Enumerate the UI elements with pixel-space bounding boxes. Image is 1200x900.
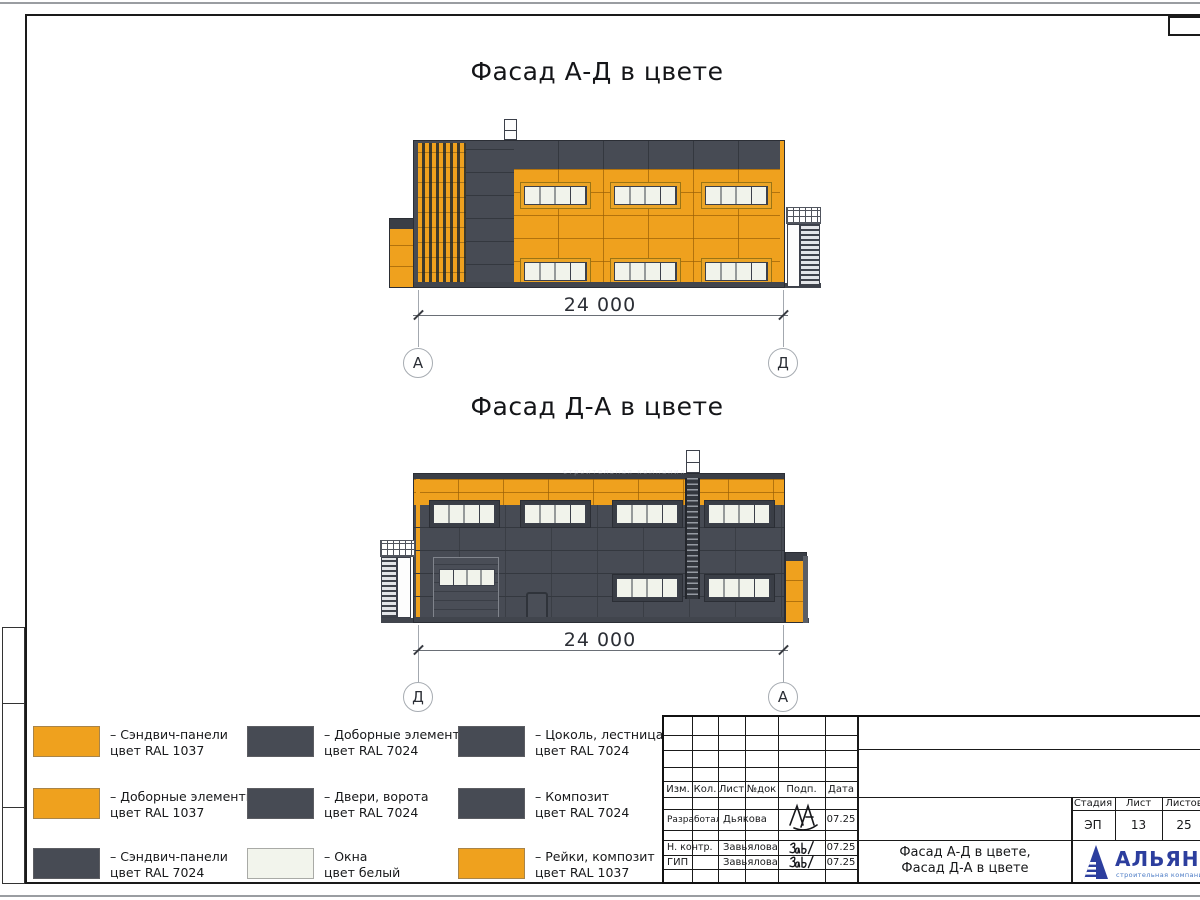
legend-item: – Двери, воротацвет RAL 7024 bbox=[247, 788, 429, 820]
tb-sheet-label: Лист bbox=[1115, 797, 1162, 810]
tb-col-data: Дата bbox=[825, 781, 857, 797]
facade1-stair-door bbox=[787, 224, 800, 287]
tb-line bbox=[857, 749, 1200, 750]
facade1-building bbox=[413, 140, 785, 288]
drawing-sheet: Фасад А-Д в цвете 24 000 А Д Фасад Д-А в… bbox=[0, 0, 1200, 900]
tb-doc-name-line2: Фасад Д-А в цвете bbox=[859, 861, 1071, 877]
company-logo: АЛЬЯНС строительная компания bbox=[1071, 840, 1200, 882]
facade2-annex-side bbox=[803, 556, 808, 623]
facade2-dimension-label: 24 000 bbox=[498, 629, 702, 651]
legend-swatch bbox=[33, 788, 100, 819]
window bbox=[524, 504, 587, 524]
facade1-title: Фасад А-Д в цвете bbox=[397, 57, 797, 86]
legend-label: – Окна bbox=[324, 849, 400, 865]
tb-col-izm: Изм. bbox=[664, 781, 692, 797]
facade2-building bbox=[413, 473, 785, 623]
facade2-title: Фасад Д-А в цвете bbox=[397, 392, 797, 421]
facade2-gate bbox=[433, 557, 499, 619]
legend-swatch bbox=[247, 848, 314, 879]
corner-stamp-box bbox=[1168, 16, 1200, 36]
facade2-door bbox=[526, 592, 548, 619]
legend-label: цвет RAL 1037 bbox=[110, 805, 256, 821]
facade2-orange-band bbox=[414, 479, 784, 505]
window bbox=[524, 262, 587, 281]
tb-line bbox=[664, 767, 857, 768]
signature-dyakova-icon bbox=[782, 801, 826, 833]
window bbox=[616, 504, 679, 524]
window bbox=[708, 578, 771, 598]
legend-label: – Доборные элементы bbox=[110, 789, 256, 805]
legend-swatch bbox=[458, 788, 525, 819]
company-logo-icon bbox=[1083, 844, 1109, 880]
facade1-edge-strip bbox=[780, 141, 784, 287]
legend-label: цвет RAL 1037 bbox=[110, 743, 228, 759]
window bbox=[614, 262, 677, 281]
axis-mark-a2: А bbox=[768, 682, 798, 712]
legend-swatch bbox=[247, 788, 314, 819]
legend-item: – Сэндвич-панелицвет RAL 1037 bbox=[33, 726, 228, 758]
legend-item: – Доборные элементыцвет RAL 7024 bbox=[247, 726, 470, 758]
tb-sheets-value: 25 bbox=[1162, 810, 1200, 840]
tb-name: Дьякова bbox=[720, 809, 778, 830]
window bbox=[708, 504, 771, 524]
legend-swatch bbox=[458, 726, 525, 757]
legend-item: – Цоколь, лестницацвет RAL 7024 bbox=[458, 726, 663, 758]
facade2-ladder bbox=[685, 478, 700, 599]
legend-label: цвет RAL 1037 bbox=[535, 865, 655, 881]
legend-label: цвет RAL 7024 bbox=[324, 743, 470, 759]
axis-letter: Д bbox=[777, 354, 789, 372]
legend-label: – Цоколь, лестница bbox=[535, 727, 663, 743]
facade1-stair-treads bbox=[800, 224, 820, 287]
tb-stage-value: ЭП bbox=[1071, 810, 1115, 840]
axis-mark-d: Д bbox=[768, 348, 798, 378]
window bbox=[433, 504, 496, 524]
facade1-stair-railing bbox=[786, 207, 821, 224]
tb-date: 07.25 bbox=[825, 809, 857, 830]
tb-sheets-label: Листов bbox=[1162, 797, 1200, 810]
facade2-stair-railing bbox=[380, 540, 415, 557]
tb-line bbox=[664, 735, 857, 736]
legend-label: – Сэндвич-панели bbox=[110, 849, 228, 865]
facade2-chimney bbox=[686, 450, 700, 473]
tb-name: Завьялова bbox=[720, 855, 778, 869]
title-block: Изм. Кол. Лист №док Подп. Дата Разработа… bbox=[662, 715, 1200, 884]
facade1-chimney-joint bbox=[505, 130, 516, 131]
tb-line bbox=[664, 830, 857, 831]
window bbox=[614, 186, 677, 205]
legend-label: цвет белый bbox=[324, 865, 400, 881]
tb-line bbox=[718, 717, 719, 882]
extension-line bbox=[418, 290, 419, 347]
facade2-chimney-joint bbox=[687, 462, 699, 463]
facade2-watermark: строительная компания bbox=[563, 468, 686, 476]
tb-sheet-value: 13 bbox=[1115, 810, 1162, 840]
legend-swatch bbox=[247, 726, 314, 757]
legend-label: – Композит bbox=[535, 789, 629, 805]
legend-label: цвет RAL 7024 bbox=[535, 743, 663, 759]
margin-field-2 bbox=[2, 703, 25, 808]
legend-item: – Доборные элементыцвет RAL 1037 bbox=[33, 788, 256, 820]
legend-item: – Окнацвет белый bbox=[247, 848, 400, 880]
tb-line bbox=[664, 750, 857, 751]
axis-letter: А bbox=[778, 688, 788, 706]
facade1-slat-cladding bbox=[418, 143, 466, 287]
tb-date: 07.25 bbox=[825, 840, 857, 855]
tb-role: Н. контр. bbox=[664, 840, 718, 855]
tb-doc-name-line1: Фасад А-Д в цвете, bbox=[859, 845, 1071, 861]
company-tagline: строительная компания bbox=[1116, 871, 1200, 879]
legend-label: – Доборные элементы bbox=[324, 727, 470, 743]
company-name: АЛЬЯНС bbox=[1115, 847, 1200, 871]
tb-date: 07.25 bbox=[825, 855, 857, 869]
margin-field-1 bbox=[2, 627, 25, 704]
legend-item: – Сэндвич-панелицвет RAL 7024 bbox=[33, 848, 228, 880]
facade2-stair-door bbox=[397, 557, 411, 618]
window bbox=[524, 186, 587, 205]
axis-letter: А bbox=[413, 354, 423, 372]
tb-line bbox=[664, 869, 857, 870]
facade2-plinth bbox=[414, 617, 784, 622]
tb-name: Завьялова bbox=[720, 840, 778, 855]
paper-edge-top bbox=[0, 2, 1200, 4]
tb-role: ГИП bbox=[664, 855, 718, 869]
legend-label: – Двери, ворота bbox=[324, 789, 429, 805]
axis-mark-a: А bbox=[403, 348, 433, 378]
facade1-plinth bbox=[414, 282, 784, 287]
extension-line bbox=[783, 290, 784, 347]
axis-letter: Д bbox=[412, 688, 424, 706]
tb-col-kol: Кол. bbox=[692, 781, 718, 797]
legend-swatch bbox=[458, 848, 525, 879]
legend-swatch bbox=[33, 726, 100, 757]
tb-role: Разработал bbox=[664, 809, 718, 830]
facade1-chimney bbox=[504, 119, 517, 140]
legend-label: – Сэндвич-панели bbox=[110, 727, 228, 743]
facade1-panel-section bbox=[466, 141, 514, 287]
legend-label: цвет RAL 7024 bbox=[324, 805, 429, 821]
facade2-stair-treads bbox=[381, 557, 397, 618]
margin-field-3 bbox=[2, 807, 25, 884]
legend-label: цвет RAL 7024 bbox=[535, 805, 629, 821]
window bbox=[616, 578, 679, 598]
gate-window-strip bbox=[439, 569, 495, 586]
legend-label: – Рейки, композит bbox=[535, 849, 655, 865]
facade1-dimension-label: 24 000 bbox=[498, 294, 702, 316]
axis-mark-d2: Д bbox=[403, 682, 433, 712]
legend-label: цвет RAL 7024 bbox=[110, 865, 228, 881]
window bbox=[705, 186, 768, 205]
tb-line bbox=[778, 717, 779, 882]
facade1-roof-band bbox=[514, 141, 780, 170]
extension-line bbox=[418, 625, 419, 682]
tb-col-podp: Подп. bbox=[778, 781, 825, 797]
tb-stage-label: Стадия bbox=[1071, 797, 1115, 810]
tb-col-ndok: №док bbox=[745, 781, 778, 797]
tb-col-list: Лист bbox=[718, 781, 745, 797]
extension-line bbox=[783, 625, 784, 682]
legend-item: – Композитцвет RAL 7024 bbox=[458, 788, 629, 820]
legend-item: – Рейки, композитцвет RAL 1037 bbox=[458, 848, 655, 880]
tb-doc-name: Фасад А-Д в цвете, Фасад Д-А в цвете bbox=[859, 845, 1071, 877]
legend-swatch bbox=[33, 848, 100, 879]
paper-edge-bottom bbox=[0, 895, 1200, 897]
signature-zavyalova-icon bbox=[782, 854, 822, 870]
window bbox=[705, 262, 768, 281]
